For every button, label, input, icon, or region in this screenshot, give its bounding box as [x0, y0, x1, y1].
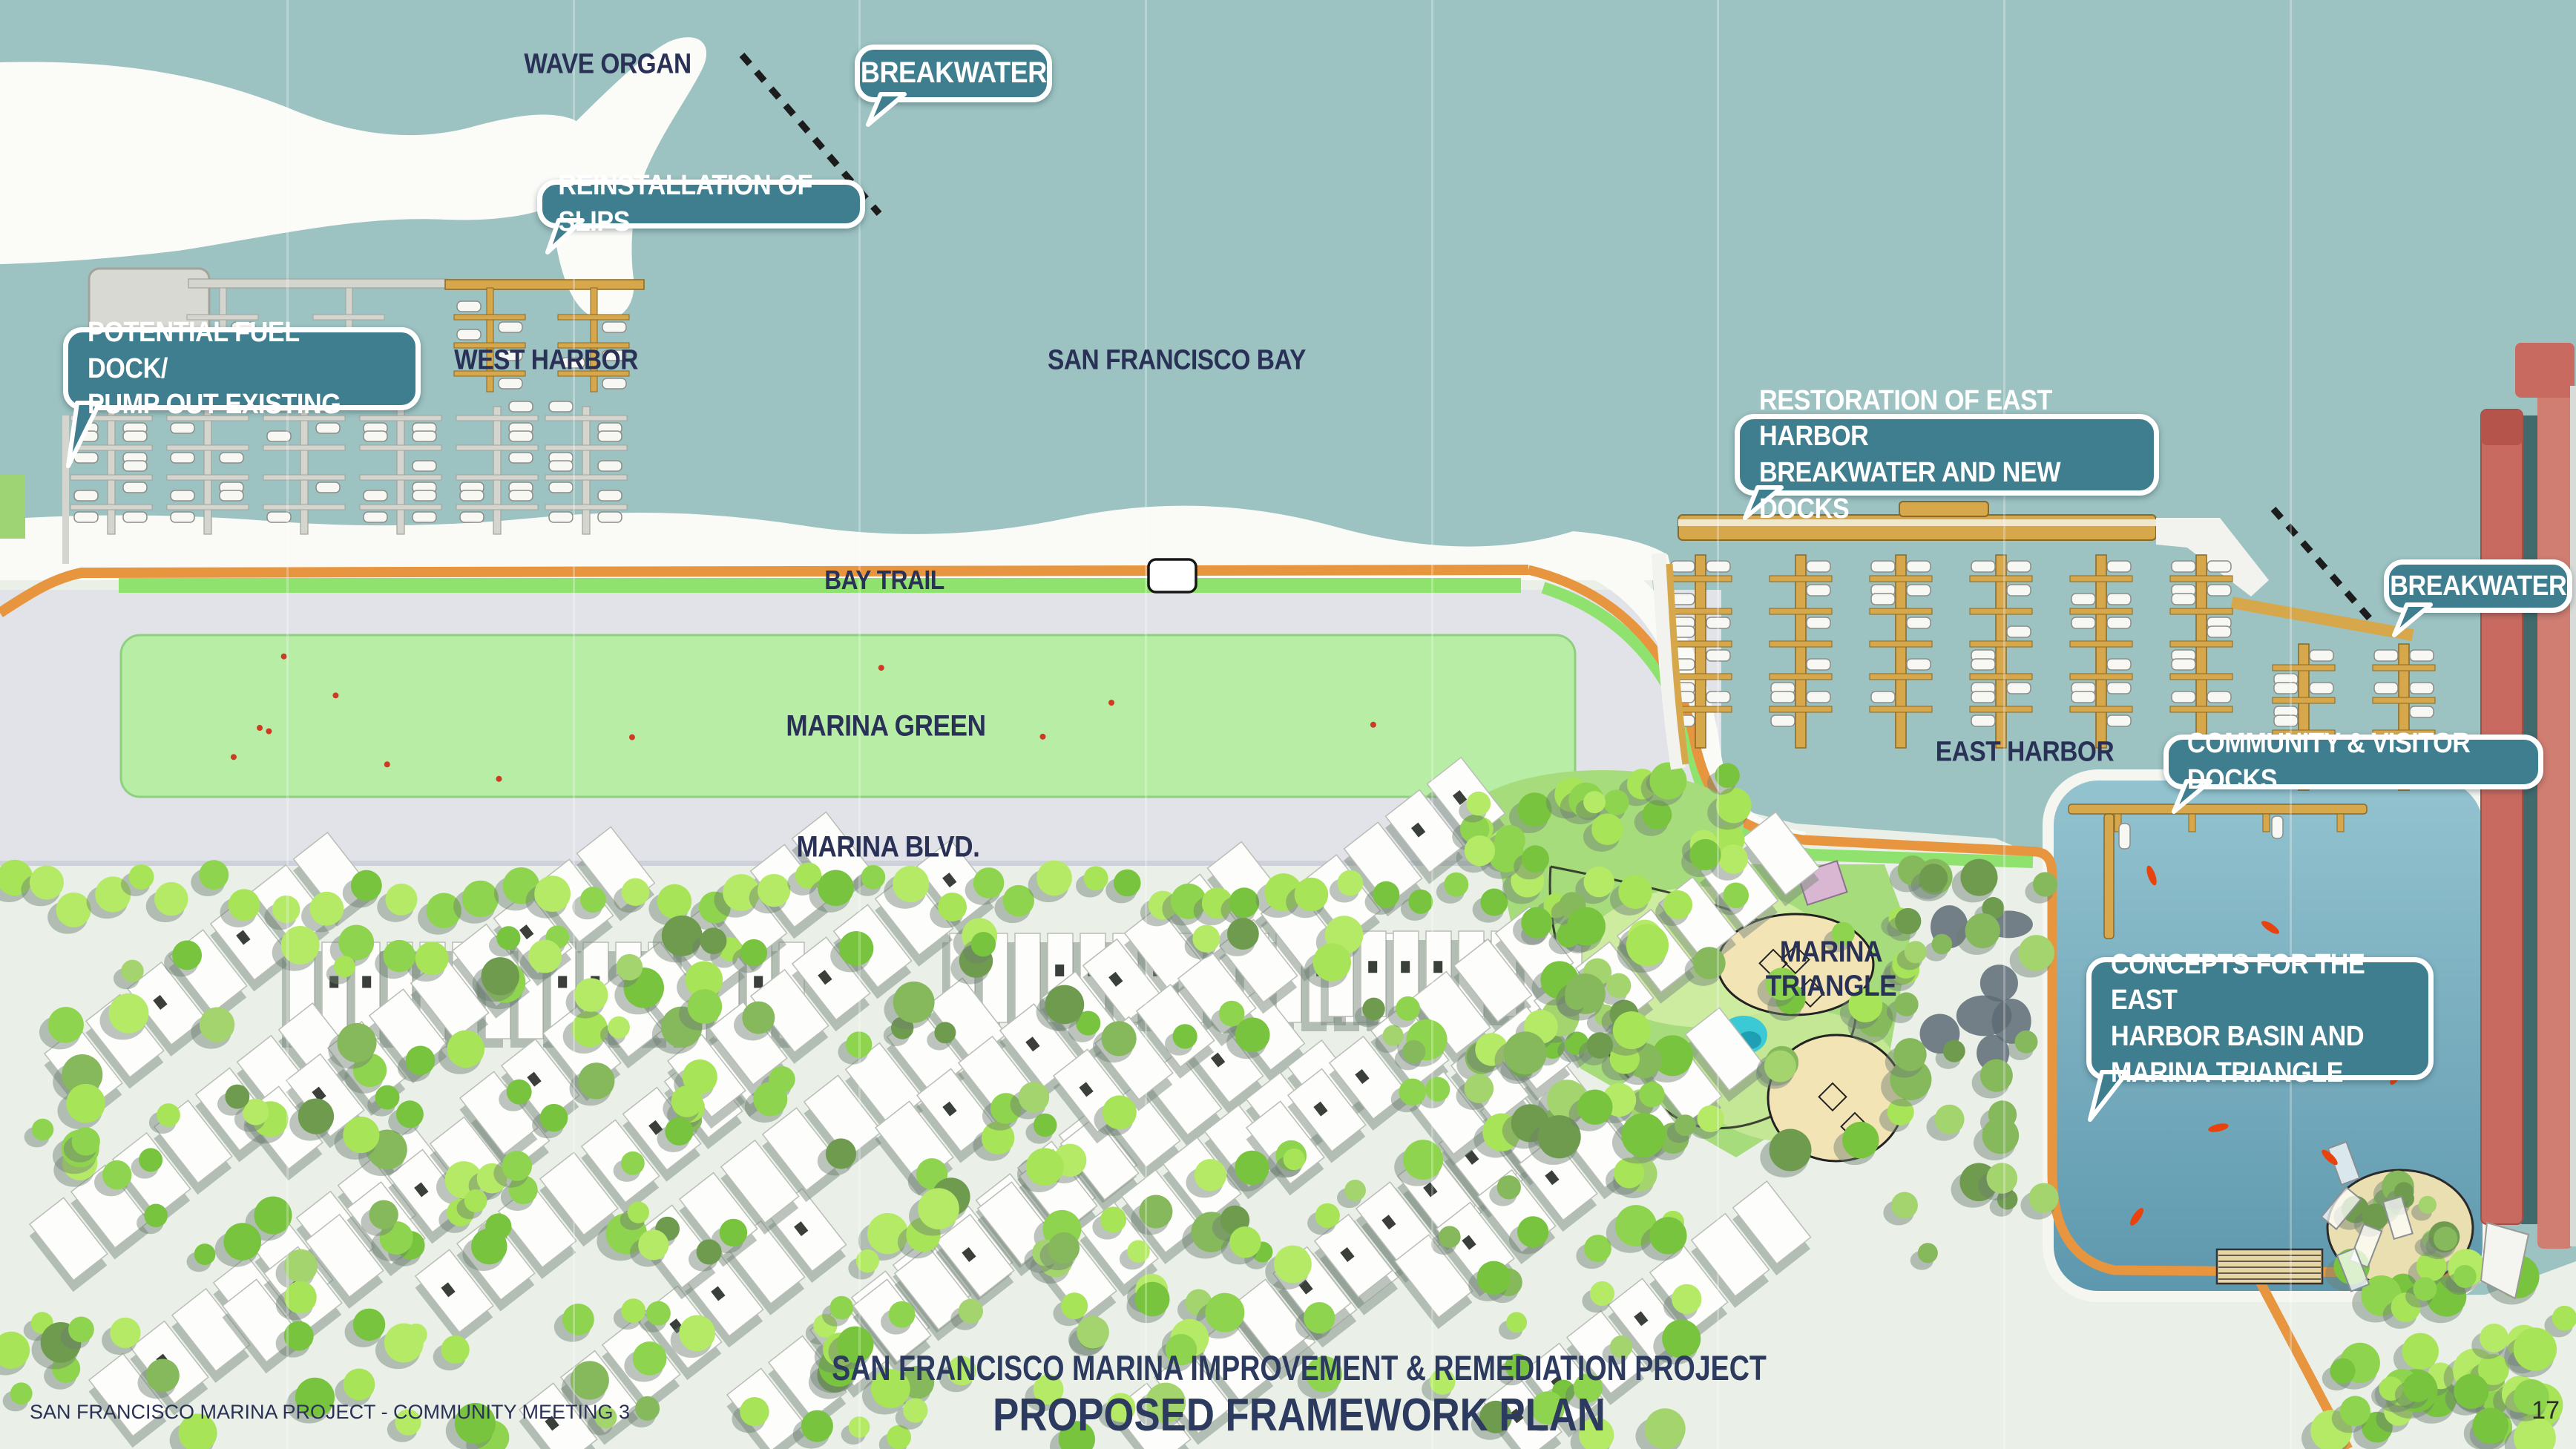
potential-fuel-dock-callout: POTENTIAL FUEL DOCK/ PUMP OUT EXISTING: [63, 327, 421, 410]
west-harbor-label: WEST HARBOR: [441, 345, 651, 377]
page-number: 17: [2531, 1396, 2560, 1425]
marina-triangle-label: MARINA TRIANGLE: [1731, 935, 1931, 1003]
reinstallation-of-slips-callout: REINSTALLATION OF SLIPS: [537, 180, 865, 229]
wave-organ-label: WAVE ORGAN: [513, 49, 703, 81]
red-pier-structures: [2481, 343, 2576, 1298]
marina-green-label: MARINA GREEN: [772, 710, 999, 743]
framework-plan-slide: WAVE ORGAN WEST HARBOR SAN FRANCISCO BAY…: [0, 0, 2576, 1449]
breakwater-east-callout: BREAKWATER: [2384, 559, 2572, 613]
page-title: PROPOSED FRAMEWORK PLAN: [993, 1389, 1606, 1442]
restoration-east-harbor-callout: RESTORATION OF EAST HARBOR BREAKWATER AN…: [1735, 414, 2159, 496]
concepts-east-harbor-callout: CONCEPTS FOR THE EAST HARBOR BASIN AND M…: [2086, 957, 2434, 1080]
bay-trail-label: BAY TRAIL: [816, 565, 953, 596]
breakwater-west-callout: BREAKWATER: [855, 45, 1052, 102]
marina-blvd-label: MARINA BLVD.: [784, 831, 993, 864]
marina-site-plan: [0, 0, 2576, 1449]
san-francisco-bay-label: SAN FRANCISCO BAY: [1030, 345, 1323, 377]
footer-meeting-label: SAN FRANCISCO MARINA PROJECT - COMMUNITY…: [30, 1401, 630, 1424]
community-visitor-docks-callout: COMMUNITY & VISITOR DOCKS: [2163, 735, 2543, 789]
east-harbor-label: EAST HARBOR: [1923, 737, 2126, 769]
project-title: SAN FRANCISCO MARINA IMPROVEMENT & REMED…: [832, 1347, 1767, 1388]
